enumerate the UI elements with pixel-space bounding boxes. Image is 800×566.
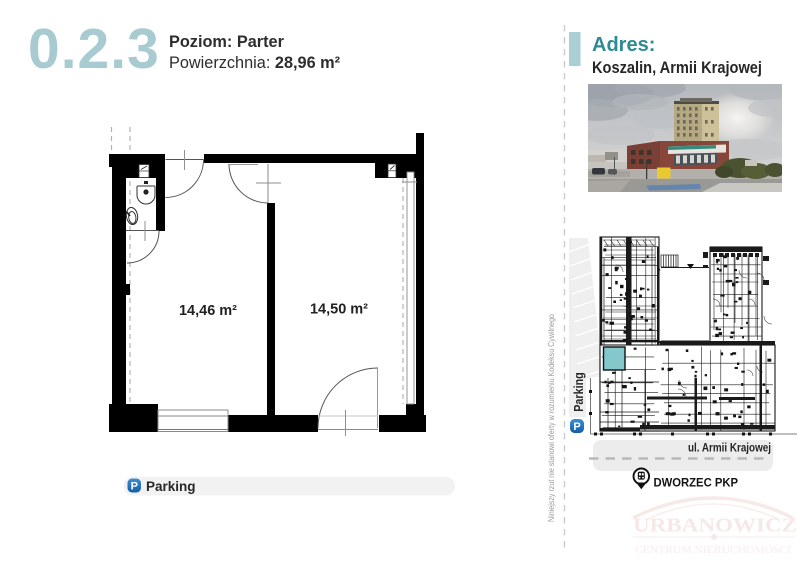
svg-text:CENTRUM NIERUCHOMOŚCI: CENTRUM NIERUCHOMOŚCI [635, 544, 791, 556]
svg-text:ul. Armii Krajowej: ul. Armii Krajowej [688, 443, 771, 455]
svg-text:P: P [573, 421, 580, 433]
svg-text:Poziom: Parter: Poziom: Parter [169, 33, 285, 51]
svg-text:Powierzchnia: 28,96 m²: Powierzchnia: 28,96 m² [169, 54, 341, 72]
svg-text:DWORZEC PKP: DWORZEC PKP [654, 476, 739, 490]
svg-text:0.2.3: 0.2.3 [28, 17, 160, 81]
svg-text:14,50 m²: 14,50 m² [310, 302, 368, 318]
svg-text:Parking: Parking [146, 479, 196, 494]
svg-text:Adres:: Adres: [592, 34, 655, 56]
svg-text:14,46 m²: 14,46 m² [179, 303, 237, 319]
svg-text:Niniejszy rzut nie stanowi ofe: Niniejszy rzut nie stanowi oferty w rozu… [546, 314, 556, 522]
svg-text:URBANOWICZ: URBANOWICZ [633, 515, 797, 537]
svg-text:Koszalin, Armii Krajowej: Koszalin, Armii Krajowej [592, 59, 762, 77]
svg-text:Parking: Parking [572, 372, 586, 412]
svg-text:P: P [131, 481, 138, 493]
